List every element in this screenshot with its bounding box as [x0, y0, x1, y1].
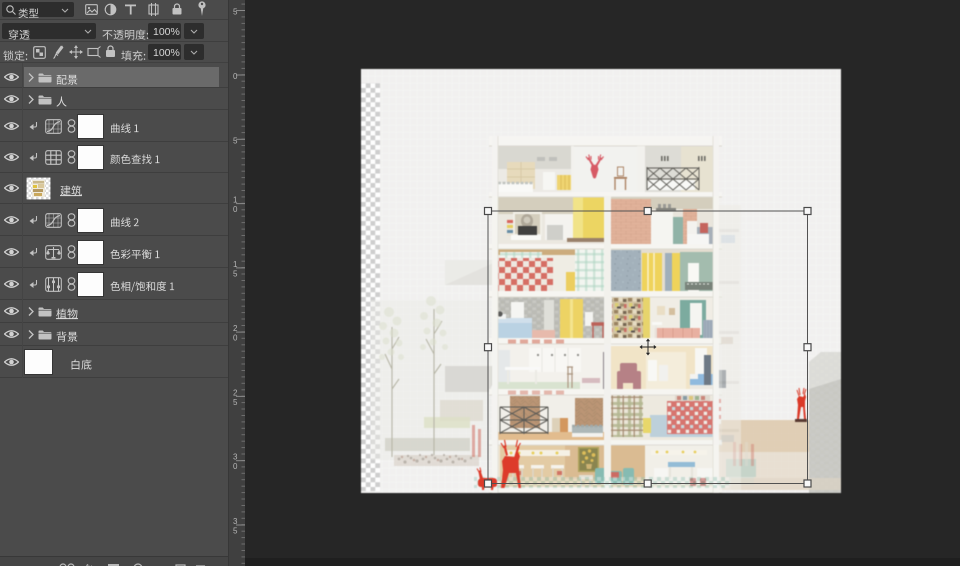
svg-text:5: 5: [233, 269, 238, 278]
svg-text:2: 2: [233, 388, 238, 397]
svg-text:3: 3: [233, 517, 238, 526]
svg-text:5: 5: [233, 8, 238, 17]
svg-text:0: 0: [233, 72, 238, 81]
svg-text:0: 0: [233, 462, 238, 471]
svg-text:2: 2: [233, 324, 238, 333]
svg-text:100%: 100%: [153, 47, 180, 59]
svg-text:100%: 100%: [153, 26, 180, 38]
svg-text:1: 1: [233, 260, 238, 269]
svg-text:3: 3: [233, 453, 238, 462]
svg-text:0: 0: [233, 334, 238, 343]
svg-text:5: 5: [233, 136, 238, 145]
svg-text:1: 1: [233, 196, 238, 205]
svg-text:5: 5: [233, 527, 238, 536]
svg-text:0: 0: [233, 205, 238, 214]
svg-text:5: 5: [233, 398, 238, 407]
